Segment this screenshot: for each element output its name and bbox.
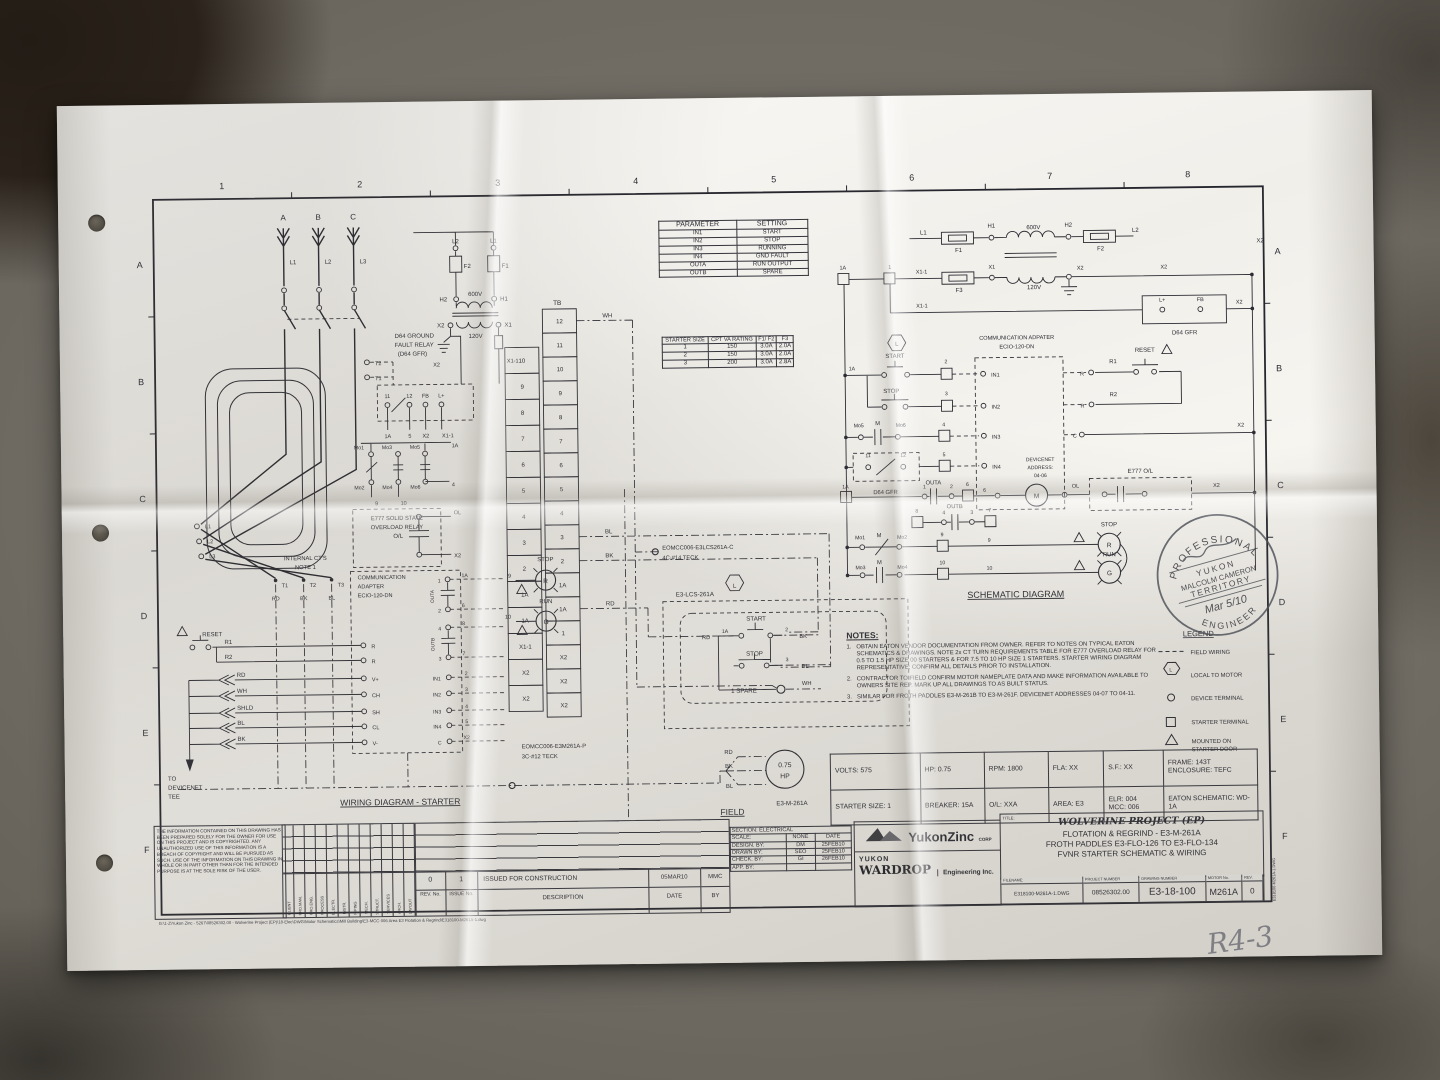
terminal-label: 6 bbox=[559, 463, 563, 469]
terminal-circle bbox=[989, 235, 994, 240]
svg-label: 1A bbox=[384, 434, 391, 440]
svg-label: 600V bbox=[1026, 225, 1040, 231]
svg-label: R2 bbox=[225, 655, 233, 661]
component-box bbox=[841, 491, 852, 502]
svg-label: 600V bbox=[468, 292, 482, 298]
svg-label: RESET bbox=[202, 632, 222, 638]
terminal-label: 10 bbox=[557, 367, 564, 373]
svg-label: 2 bbox=[357, 179, 362, 189]
terminal-circle bbox=[396, 451, 401, 456]
svg-label: BL bbox=[605, 529, 613, 535]
title-label: TITLE: bbox=[1003, 815, 1015, 820]
svg-label: 7 bbox=[1047, 171, 1052, 181]
table-cell: CPT VA RATING bbox=[708, 336, 756, 344]
terminal-circle bbox=[446, 675, 451, 680]
svg-label: X2 bbox=[433, 362, 440, 368]
terminal-circle bbox=[352, 305, 357, 310]
component-box bbox=[985, 516, 996, 527]
svg-label: L+ bbox=[1159, 298, 1165, 304]
svg-label: 10 bbox=[401, 501, 407, 507]
table-cell: 200 bbox=[708, 359, 756, 367]
svg-label: MOUNTED ON bbox=[1192, 739, 1232, 745]
svg-label: F bbox=[144, 845, 150, 855]
svg-label: 6 bbox=[983, 488, 986, 494]
terminal-label: 7 bbox=[521, 437, 525, 443]
svg-label: X2 bbox=[422, 434, 429, 440]
terminal-circle bbox=[1198, 307, 1203, 312]
svg-label: RUN bbox=[1103, 552, 1116, 558]
svg-label: 1A bbox=[839, 265, 846, 271]
stamp-date: Mar 5/10 bbox=[1203, 593, 1249, 617]
junction-dot bbox=[302, 578, 306, 582]
svg-label: STOP bbox=[746, 650, 763, 657]
terminal-circle bbox=[446, 655, 451, 660]
terminal-circle bbox=[369, 480, 374, 485]
component-box bbox=[1083, 230, 1115, 242]
terminal-circle bbox=[206, 645, 211, 650]
svg-label: 12 bbox=[900, 453, 906, 459]
svg-label: A bbox=[137, 260, 143, 270]
svg-label: L bbox=[1169, 667, 1172, 673]
svg-label: SCHEMATIC DIAGRAM bbox=[967, 589, 1064, 600]
component-box bbox=[937, 540, 948, 551]
component-box bbox=[941, 232, 973, 244]
terminal-circle bbox=[453, 246, 458, 251]
component-box bbox=[884, 273, 895, 284]
rev-no-label: REV. No. bbox=[415, 890, 445, 898]
table-cell: STARTER SIZE bbox=[662, 337, 708, 345]
yukon-zinc-logo-mountains bbox=[864, 826, 904, 842]
svg-label: BL bbox=[726, 784, 734, 790]
ct-loop-inner bbox=[229, 392, 303, 545]
junction-dot bbox=[1251, 307, 1255, 311]
svg-label: H2 bbox=[1064, 223, 1072, 229]
svg-label: ADAPTER bbox=[358, 584, 384, 590]
svg-label: 9 bbox=[941, 532, 944, 538]
svg-label: 1A bbox=[722, 629, 729, 635]
terminal-circle bbox=[317, 287, 322, 292]
terminal-circle bbox=[197, 539, 202, 544]
svg-label: L2 bbox=[207, 539, 213, 545]
svg-label: 3 bbox=[495, 178, 500, 188]
component-box bbox=[939, 460, 950, 471]
svg-label: DEVICENET bbox=[168, 785, 203, 791]
terminal-circle bbox=[491, 245, 496, 250]
svg-label: IN4 bbox=[992, 465, 1001, 471]
junction-dot bbox=[843, 374, 847, 378]
terminal-label: 4 bbox=[560, 511, 564, 517]
svg-label: M bbox=[877, 533, 882, 539]
terminal-circle bbox=[362, 740, 367, 745]
svg-label: E bbox=[142, 728, 148, 738]
terminal-label: 6 bbox=[521, 463, 525, 469]
terminal-circle bbox=[364, 360, 369, 365]
svg-label: B bbox=[138, 377, 144, 387]
svg-label: BL bbox=[237, 721, 245, 727]
svg-label: 10 bbox=[939, 560, 945, 566]
svg-label: FB bbox=[422, 394, 429, 400]
table-cell: 3.0A bbox=[756, 359, 777, 367]
svg-label: WIRING DIAGRAM - STARTER bbox=[340, 796, 460, 807]
door-mounted-triangle bbox=[177, 627, 187, 636]
svg-label: T1 bbox=[282, 583, 288, 589]
svg-label: L2 bbox=[1132, 228, 1139, 234]
svg-label: 4 bbox=[438, 626, 441, 632]
svg-label: 3 bbox=[439, 656, 442, 662]
junction-dot bbox=[1253, 491, 1257, 495]
svg-label: E bbox=[1280, 714, 1286, 724]
svg-label: L bbox=[895, 342, 899, 348]
svg-label: 1 bbox=[438, 578, 441, 584]
svg-label: D bbox=[1279, 597, 1286, 607]
svg-label: R bbox=[1080, 404, 1084, 410]
svg-label: L1 bbox=[490, 239, 497, 245]
svg-label: Mo3 bbox=[382, 445, 392, 451]
svg-label: FAULT RELAY bbox=[395, 342, 434, 348]
svg-label: 1A bbox=[452, 443, 459, 449]
terminal-circle bbox=[922, 494, 927, 499]
terminal-circle bbox=[897, 544, 902, 549]
svg-label: 1 bbox=[888, 265, 891, 271]
note-item: 2.CONTRACTOR TO FIELD CONFIRM MOTOR NAME… bbox=[847, 673, 1165, 691]
svg-label: Mo3 bbox=[855, 565, 865, 571]
svg-label: 2 bbox=[944, 359, 947, 365]
terminal-label: X2 bbox=[560, 679, 568, 685]
title-block: TITLE: WOLVERINE PROJECT (EP) FLOTATION … bbox=[999, 810, 1264, 879]
component-box bbox=[450, 256, 462, 272]
svg-label: ECIO-120-DN bbox=[358, 593, 393, 599]
terminal-circle bbox=[1152, 369, 1157, 374]
svg-label: R bbox=[1080, 372, 1084, 378]
terminal-circle bbox=[445, 577, 450, 582]
svg-label: T2 bbox=[375, 361, 381, 367]
svg-label: E3-M-261A bbox=[776, 800, 808, 807]
svg-label: BL bbox=[802, 664, 810, 670]
svg-label: M bbox=[875, 421, 880, 427]
svg-label: R bbox=[1107, 542, 1112, 549]
terminal-circle bbox=[362, 709, 367, 714]
terminal-circle bbox=[1102, 492, 1107, 497]
svg-label: 4 bbox=[942, 422, 945, 428]
svg-label: L1 bbox=[290, 260, 297, 266]
svg-label: X1-1 bbox=[507, 358, 519, 364]
table-cell: 2.8A bbox=[777, 359, 794, 367]
svg-label: M bbox=[877, 560, 882, 566]
svg-label: 3 bbox=[945, 391, 948, 397]
wardrop-wordmark: WARDROP bbox=[859, 862, 931, 877]
component-box bbox=[937, 568, 948, 579]
table-cell: S.F.: XX bbox=[1103, 750, 1163, 786]
svg-label: WH bbox=[602, 313, 612, 319]
svg-label: Mo4 bbox=[897, 565, 907, 571]
svg-label: O/L bbox=[393, 534, 403, 540]
doc-cell: DRAWING NUMBERE3-18-100 bbox=[1139, 875, 1206, 902]
svg-label: C bbox=[1073, 434, 1077, 440]
terminal-circle bbox=[446, 625, 451, 630]
table-cell: RPM: 1800 bbox=[984, 752, 1048, 788]
engineering-inc: Engineering Inc. bbox=[937, 869, 994, 877]
terminal-circle bbox=[982, 463, 987, 468]
svg-label: 2 bbox=[465, 671, 468, 677]
terminal-circle bbox=[1079, 432, 1084, 437]
svg-label: IN1 bbox=[433, 676, 441, 682]
terminal-label: 1A bbox=[521, 593, 528, 599]
svg-label: L1 bbox=[205, 524, 211, 530]
terminal-circle bbox=[361, 676, 366, 681]
svg-label: V- bbox=[373, 741, 378, 747]
svg-label: B bbox=[1276, 363, 1282, 373]
svg-label: 6 bbox=[966, 482, 969, 488]
yukonzinc-wordmark: YukonZinc bbox=[908, 829, 974, 845]
svg-label: M bbox=[1034, 493, 1040, 500]
junction-dot bbox=[1250, 273, 1254, 277]
table-cell: HP: 0.75 bbox=[920, 752, 984, 788]
svg-label: D bbox=[141, 611, 148, 621]
terminal-label: 4 bbox=[522, 515, 526, 521]
svg-label: Mo5 bbox=[410, 445, 420, 451]
note-item: 1.OBTAIN EATON VENDOR DOCUMENTATION FROM… bbox=[846, 641, 1164, 673]
terminal-circle bbox=[901, 464, 906, 469]
svg-label: R1 bbox=[1109, 359, 1116, 365]
terminal-circle bbox=[417, 552, 422, 557]
svg-label: 1A bbox=[849, 366, 856, 372]
svg-label: IN4 bbox=[433, 724, 441, 730]
component-box bbox=[963, 490, 974, 501]
terminal-circle bbox=[407, 402, 412, 407]
terminal-circle bbox=[199, 554, 204, 559]
terminal-label: 11 bbox=[557, 343, 564, 349]
svg-label: H1 bbox=[987, 224, 995, 230]
component-box bbox=[942, 272, 974, 284]
issue-by: MMC bbox=[701, 868, 729, 887]
component-box bbox=[941, 368, 952, 379]
terminal-circle bbox=[1160, 307, 1165, 312]
svg-label: L1 bbox=[920, 230, 927, 236]
table-cell bbox=[815, 862, 851, 870]
svg-label: 1 SPARE bbox=[731, 688, 757, 695]
terminal-circle bbox=[858, 435, 863, 440]
terminal-label: 10 bbox=[519, 359, 526, 365]
terminal-circle bbox=[282, 306, 287, 311]
svg-label: IN3 bbox=[992, 435, 1001, 441]
svg-label: 120V bbox=[1027, 285, 1041, 291]
svg-label: L2 bbox=[452, 239, 459, 245]
svg-label: F3 bbox=[956, 288, 964, 294]
project-title: WOLVERINE PROJECT (EP) bbox=[1001, 814, 1263, 828]
door-mounted-triangle bbox=[1074, 561, 1084, 570]
rev-no-value: 0 bbox=[415, 871, 445, 890]
terminal-circle bbox=[439, 402, 444, 407]
svg-label: X2 bbox=[1160, 265, 1167, 271]
svg-label: 11 bbox=[384, 394, 390, 400]
svg-label: 120V bbox=[469, 334, 483, 340]
svg-label: 1A bbox=[842, 484, 849, 490]
svg-label: BK bbox=[799, 634, 807, 640]
handwritten-note: R4-3 bbox=[1205, 919, 1275, 961]
svg-label: DEVICE TERMINAL bbox=[1191, 696, 1244, 703]
svg-label: DEVICENET bbox=[1026, 457, 1055, 463]
copyright-fineprint: THE INFORMATION CONTAINED ON THIS DRAWIN… bbox=[154, 824, 287, 920]
component-box bbox=[948, 235, 966, 241]
svg-label: Mo1 bbox=[354, 445, 364, 451]
svg-label: 3 bbox=[970, 510, 973, 516]
svg-label: 5 bbox=[943, 452, 946, 458]
terminal-circle bbox=[396, 479, 401, 484]
component-box bbox=[939, 430, 950, 441]
table-cell: APP. BY: bbox=[731, 863, 787, 871]
svg-label: 7 bbox=[988, 508, 991, 514]
terminal-label: 1A bbox=[559, 607, 566, 613]
terminal-label: X2 bbox=[522, 697, 530, 703]
terminal-circle bbox=[764, 663, 769, 668]
svg-label: FIELD WIRING bbox=[1190, 650, 1230, 656]
terminal-circle bbox=[362, 692, 367, 697]
svg-label: WH bbox=[802, 681, 812, 687]
terminal-circle bbox=[369, 452, 374, 457]
terminal-label: 1A bbox=[559, 583, 566, 589]
svg-label: V+ bbox=[372, 677, 379, 683]
svg-label: EOMCC006-E3LCS261A-C bbox=[662, 545, 733, 552]
svg-label: 4 bbox=[452, 482, 455, 488]
svg-label: E777 SOLID STATE bbox=[371, 516, 423, 523]
svg-label: 6 bbox=[462, 603, 465, 609]
junction-dot bbox=[844, 436, 848, 440]
svg-label: T2 bbox=[310, 583, 316, 589]
terminal-circle bbox=[1066, 234, 1071, 239]
terminal-circle bbox=[317, 305, 322, 310]
table-cell: FLA: XX bbox=[1048, 751, 1104, 787]
svg-label: BK bbox=[725, 764, 733, 770]
terminal-label: X2 bbox=[560, 703, 568, 709]
svg-label: (D64 GFR) bbox=[398, 352, 427, 358]
table-cell: 2.0A bbox=[777, 343, 794, 351]
terminal-circle bbox=[1089, 402, 1094, 407]
door-mounted-triangle bbox=[1074, 533, 1084, 542]
svg-label: OL bbox=[454, 510, 461, 516]
terminal-circle bbox=[905, 372, 910, 377]
svg-label: R bbox=[372, 659, 376, 665]
svg-label: 5 bbox=[408, 434, 411, 440]
svg-label: C bbox=[139, 494, 146, 504]
terminal-circle bbox=[447, 691, 452, 696]
svg-label: COMMUNICATION ADPATER bbox=[979, 335, 1054, 342]
svg-label: RD bbox=[606, 601, 615, 607]
svg-label: X2 bbox=[454, 553, 461, 559]
svg-label: IN1 bbox=[991, 373, 1000, 379]
svg-label: 4 bbox=[633, 176, 638, 186]
svg-label: B bbox=[315, 213, 320, 222]
terminal-circle bbox=[882, 373, 887, 378]
terminal-circle bbox=[990, 275, 995, 280]
svg-label: 4 bbox=[465, 704, 468, 710]
junction-dot bbox=[846, 574, 850, 578]
terminal-circle bbox=[981, 371, 986, 376]
svg-label: 04-06 bbox=[1034, 473, 1047, 479]
terminal-label: 12 bbox=[556, 319, 563, 325]
svg-label: H2 bbox=[439, 297, 447, 303]
table-cell: VOLTS: 575 bbox=[830, 753, 920, 790]
rev-column: LAYOUT bbox=[404, 824, 416, 916]
terminal-label: 3 bbox=[522, 541, 526, 547]
svg-label: RD bbox=[702, 635, 710, 641]
svg-label: R bbox=[371, 644, 375, 650]
svg-label: F1 bbox=[502, 264, 510, 270]
terminal-label: 1A bbox=[521, 619, 528, 625]
terminal-circle bbox=[361, 643, 366, 648]
svg-label: 5 bbox=[465, 719, 468, 725]
table-cell: OUTB bbox=[659, 269, 737, 278]
junction-dot bbox=[330, 578, 334, 582]
terminal-circle bbox=[492, 296, 497, 301]
terminal-label: 2 bbox=[561, 559, 565, 565]
svg-label: X2 bbox=[1237, 423, 1244, 429]
svg-label: STOP bbox=[883, 389, 899, 395]
terminal-label: 7 bbox=[559, 439, 563, 445]
margin-filename-vertical: E318100-M261A-1.DWG bbox=[1270, 791, 1276, 901]
power-wires bbox=[197, 227, 368, 579]
svg-label: NOTE 1 bbox=[295, 565, 316, 571]
svg-label: BK bbox=[237, 737, 245, 743]
terminal-circle bbox=[981, 433, 986, 438]
field-wiring bbox=[172, 318, 832, 825]
terminal-circle bbox=[1089, 370, 1094, 375]
starter-size-table: STARTER SIZECPT VA RATINGF1/ F2F311503.0… bbox=[662, 335, 794, 369]
svg-label: X2 bbox=[1236, 300, 1243, 306]
svg-label: IN3 bbox=[433, 709, 441, 715]
terminal-circle bbox=[860, 573, 865, 578]
issue-no-value: 1 bbox=[445, 871, 477, 890]
revision-strip: CLIENTPRO.MAN.PRO.ENG.PROCESSELECTR.INST… bbox=[282, 819, 731, 918]
svg-label: IN2 bbox=[991, 405, 1000, 411]
svg-label: C bbox=[350, 212, 356, 221]
svg-label: 12 bbox=[406, 394, 412, 400]
component-box bbox=[838, 273, 849, 284]
svg-label: OUTB bbox=[430, 638, 436, 651]
svg-label: TB bbox=[553, 300, 561, 307]
svg-label: 1A bbox=[462, 573, 469, 579]
svg-label: ADDRESS: bbox=[1027, 465, 1053, 471]
admin-block: SECTION: ELECTRICALSCALE:NONEDATEDESIGN.… bbox=[730, 825, 853, 871]
punch-hole-middle bbox=[92, 524, 109, 541]
terminal-circle bbox=[866, 465, 871, 470]
svg-label: ECIO-120-DN bbox=[999, 344, 1034, 350]
terminal-circle bbox=[995, 493, 1000, 498]
terminal-label: 9 bbox=[559, 391, 563, 397]
svg-label: 3 bbox=[786, 657, 789, 663]
svg-label: COMMUNICATION bbox=[358, 575, 406, 582]
date-label: DATE bbox=[648, 887, 700, 900]
svg-label: 11 bbox=[865, 453, 871, 459]
terminal-label: 1 bbox=[562, 631, 566, 637]
junction-dot bbox=[844, 466, 848, 470]
component-box bbox=[941, 400, 952, 411]
svg-label: A bbox=[280, 213, 286, 222]
svg-label: INTERNAL CT'S bbox=[284, 556, 327, 563]
svg-label: FB bbox=[1197, 297, 1204, 303]
svg-label: X2 bbox=[1077, 266, 1084, 272]
terminal-circle bbox=[190, 645, 195, 650]
terminal-circle bbox=[447, 739, 452, 744]
terminal-circle bbox=[1142, 491, 1147, 496]
notes-block: NOTES: 1.OBTAIN EATON VENDOR DOCUMENTATI… bbox=[846, 627, 1165, 706]
punch-hole-bottom bbox=[96, 854, 113, 871]
terminal-circle bbox=[860, 545, 865, 550]
svg-label: 3C-#12 TECK bbox=[522, 754, 558, 760]
svg-label: D64 GROUND bbox=[395, 333, 435, 339]
svg-label: Mo6 bbox=[896, 423, 906, 429]
doc-cell: MOTOR No.M261A bbox=[1206, 875, 1243, 901]
svg-label: HP bbox=[780, 773, 790, 780]
